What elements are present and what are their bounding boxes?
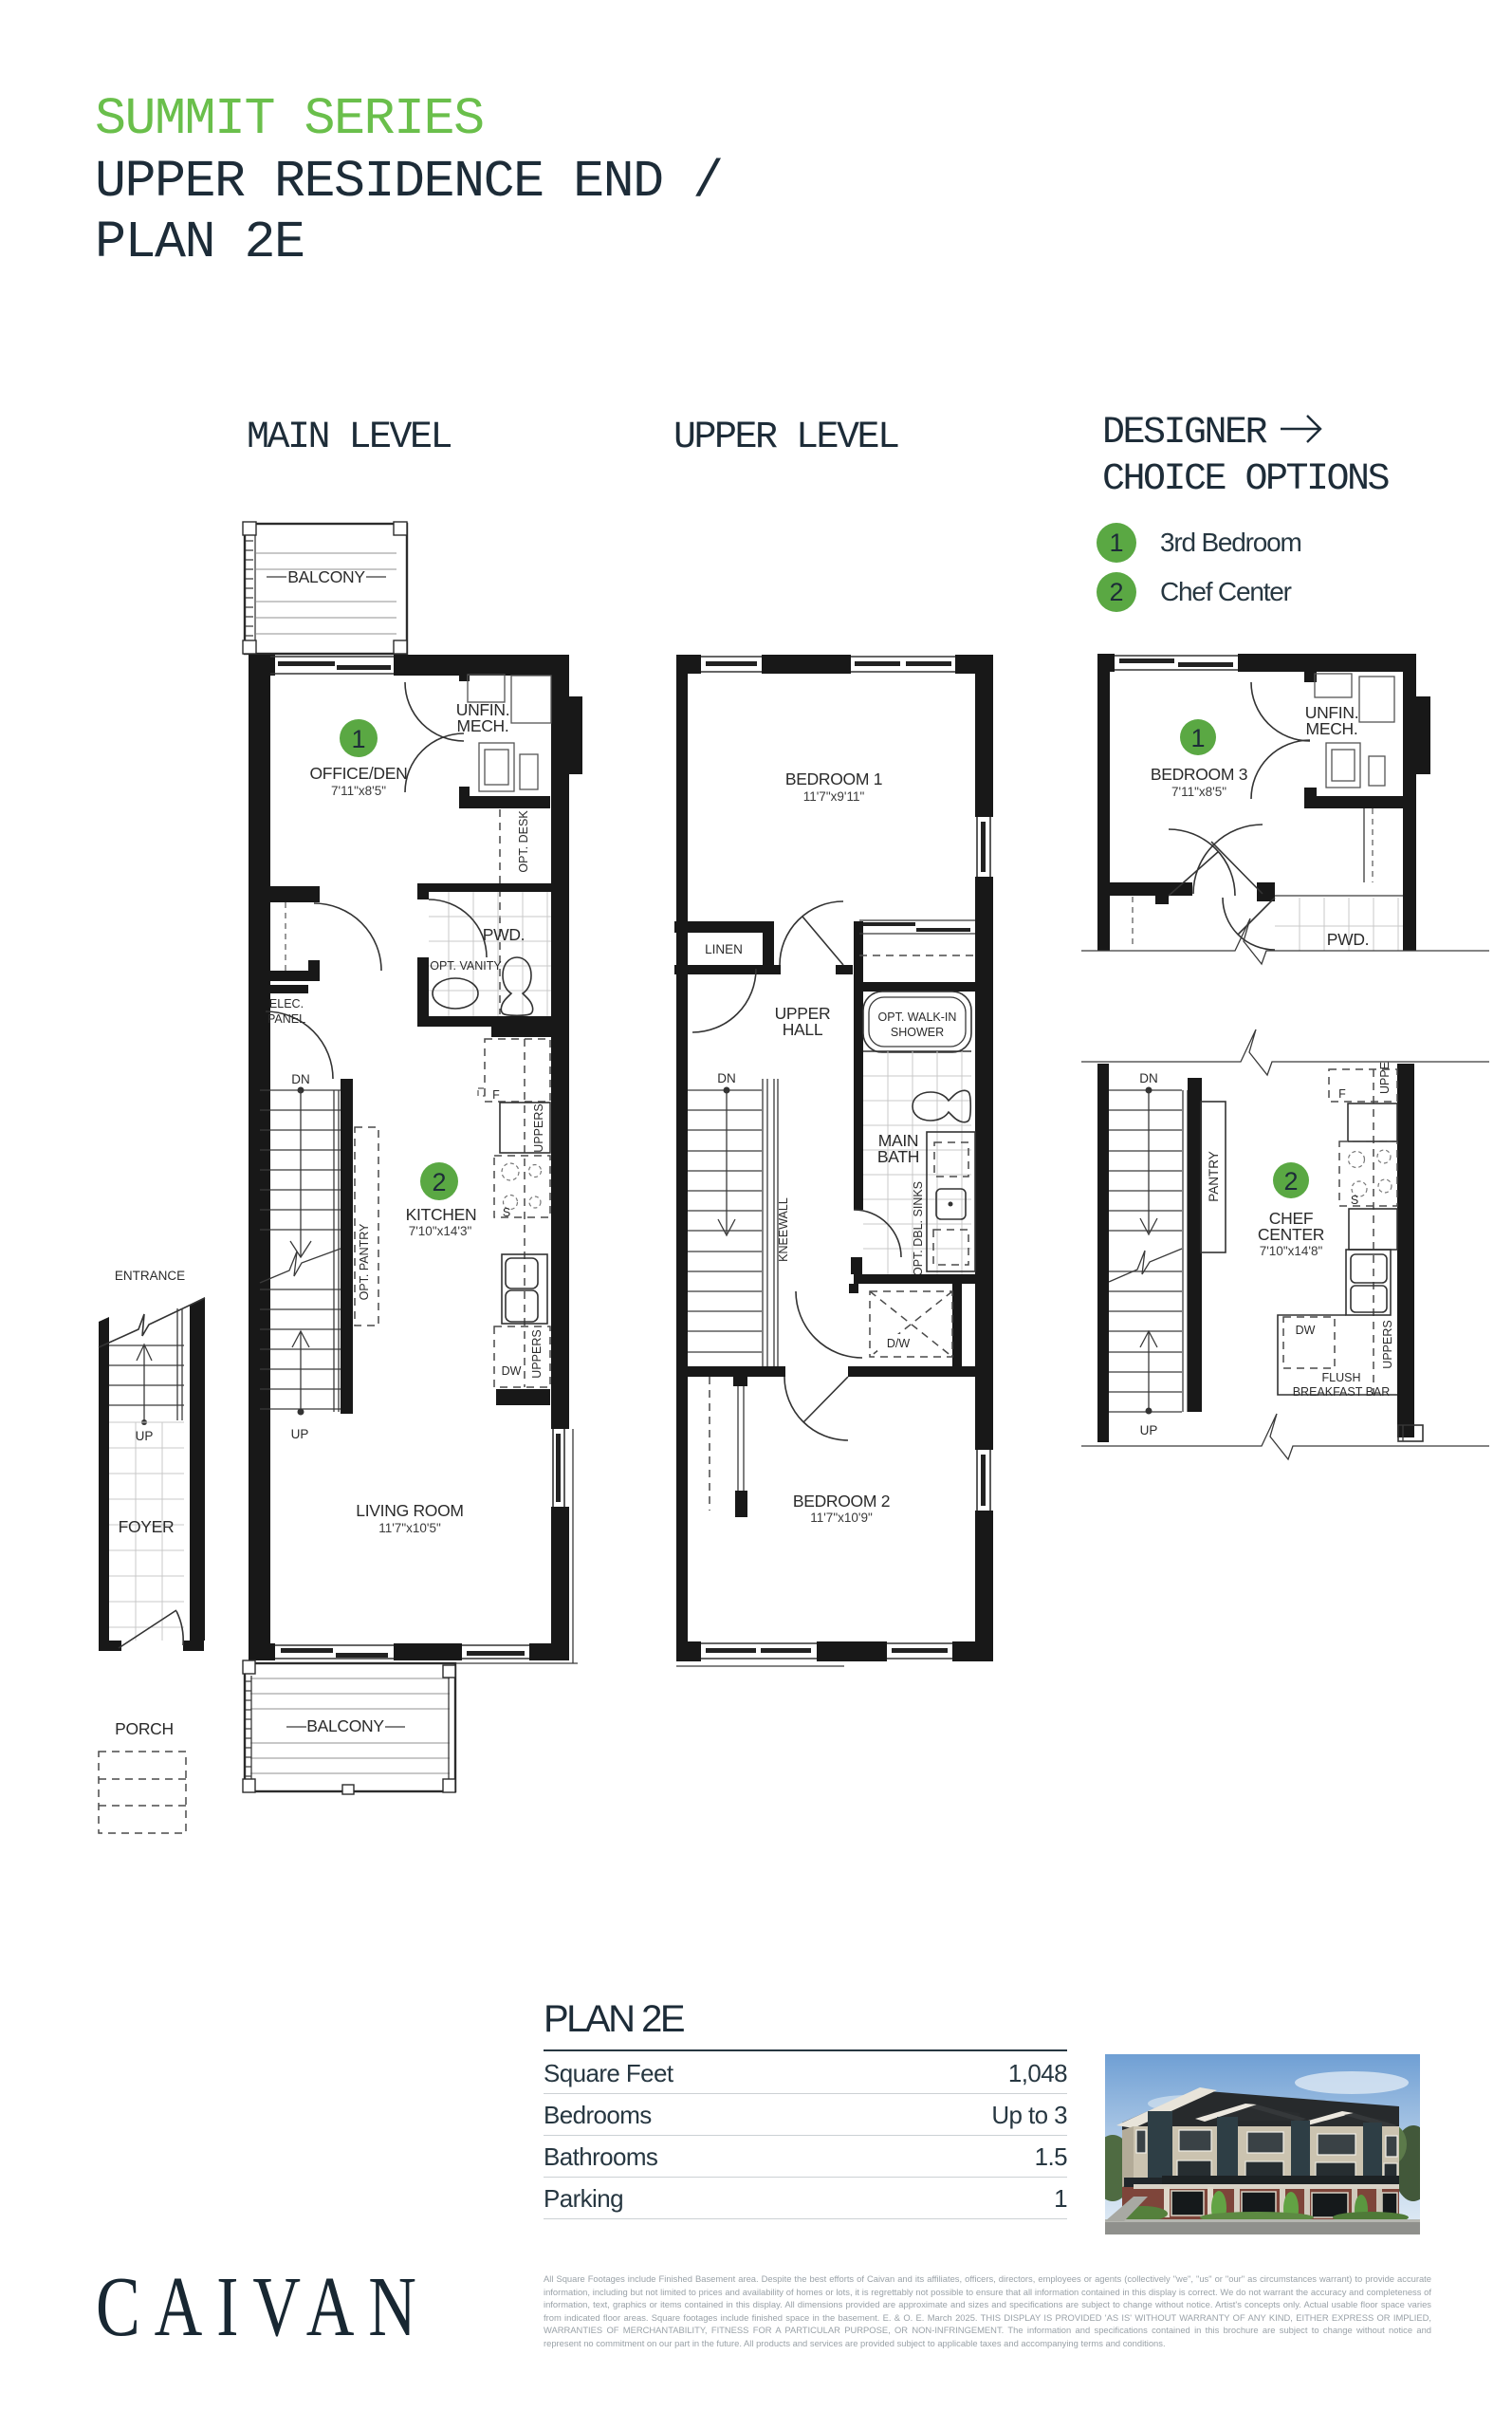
svg-text:CAIVAN: CAIVAN <box>96 2260 431 2354</box>
